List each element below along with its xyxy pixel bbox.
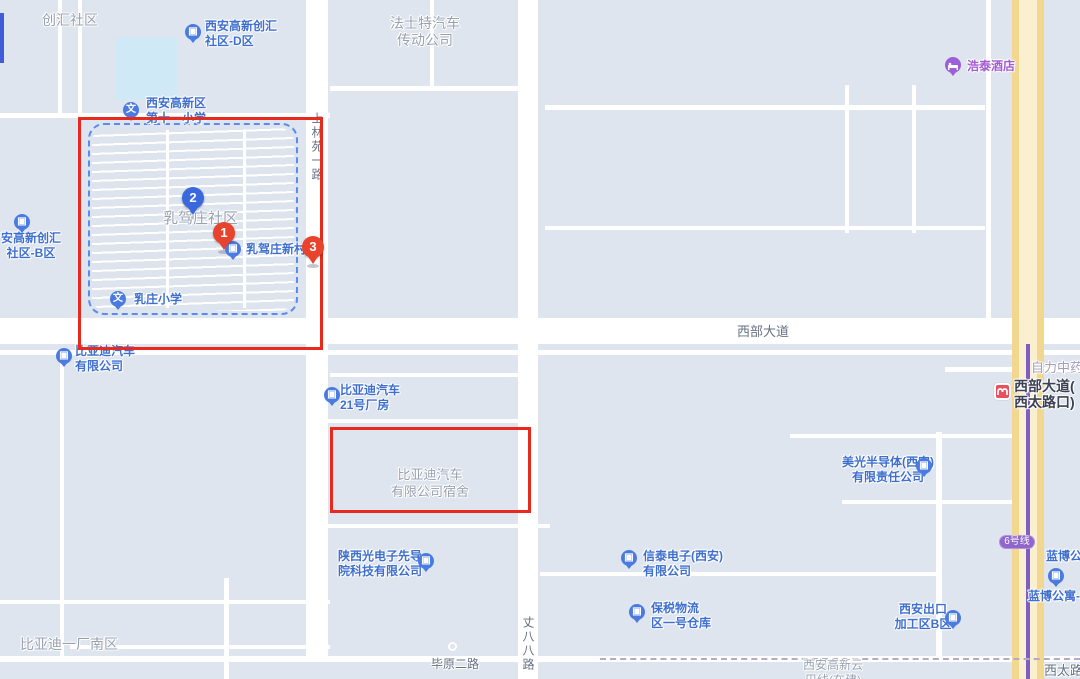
road-segment [790, 434, 1012, 438]
poi-label-lanbo-b[interactable]: 蓝博公寓-B( [1028, 589, 1080, 604]
building-icon[interactable]: ▣ [324, 387, 340, 403]
road-label-xibu-dadao: 西部大道 [737, 324, 789, 339]
building-icon[interactable]: ▣ [418, 553, 434, 569]
map-marker-1[interactable]: 1 [213, 222, 235, 244]
building-icon[interactable]: ▣ [945, 610, 961, 626]
road-segment [330, 373, 538, 377]
poi-label-metro-station[interactable]: 西部大道(西太路口) [1014, 378, 1075, 410]
poi-label-lanbo[interactable]: 蓝博公寓 [1046, 549, 1080, 564]
building-icon[interactable]: ▣ [1048, 568, 1064, 584]
road-segment [540, 572, 940, 576]
building-icon[interactable]: ▣ [185, 24, 201, 40]
hotel-bed-icon[interactable] [945, 57, 961, 73]
poi-label-byd-21-plant[interactable]: 比亚迪汽车21号厂房 [340, 383, 400, 413]
annotation-rectangle-2 [330, 427, 531, 513]
road-segment [545, 226, 985, 230]
building-icon[interactable]: ▣ [621, 550, 637, 566]
road-segment [842, 500, 1012, 504]
building-icon[interactable]: ▣ [916, 458, 932, 474]
building-icon[interactable]: ▣ [14, 214, 30, 230]
poi-label-export-zone-b[interactable]: 西安出口加工区B区 [894, 602, 952, 632]
poi-label-shaanxi-photonics[interactable]: 陕西光电子先导院科技有限公司 [338, 549, 422, 579]
highlighted-road-segment [0, 13, 4, 63]
area-label-fast-auto: 法士特汽车传动公司 [375, 15, 475, 49]
road-segment [545, 105, 985, 110]
poi-label-haotai-hotel[interactable]: 浩泰酒店 [967, 59, 1015, 74]
area-label-byd-plant1-south: 比亚迪一厂南区 [20, 636, 118, 653]
metro-line-6-badge[interactable]: 6号线 [999, 535, 1035, 549]
road-segment [60, 362, 64, 656]
metro-station-icon[interactable] [994, 383, 1011, 400]
area-label-zili-zhongyao: 自力中药 [1031, 360, 1080, 375]
building-icon[interactable]: ▣ [56, 348, 72, 364]
school-icon[interactable]: 文 [123, 102, 139, 118]
road-segment [224, 578, 229, 679]
road-segment [325, 419, 538, 423]
annotation-rectangle-1 [78, 117, 323, 350]
road-segment [330, 86, 520, 91]
building-icon[interactable]: ▣ [629, 604, 645, 620]
road-label-xitai: 西太路 [1044, 663, 1080, 678]
road-segment [320, 524, 550, 528]
area-label-yunba-line: 西安高新云巴线(在建) [788, 658, 878, 679]
poi-label-bonded-logistics[interactable]: 保税物流区一号仓库 [651, 601, 711, 631]
poi-label-chuanghui-b[interactable]: 安高新创汇社区-B区 [0, 231, 66, 261]
road-segment [0, 600, 330, 604]
road-label-zhangbaba: 丈八八路 [520, 616, 535, 672]
map-marker-3[interactable]: 3 [302, 236, 324, 258]
poi-label-xintai[interactable]: 信泰电子(西安)有限公司 [643, 549, 723, 579]
road-segment [518, 0, 538, 679]
poi-label-chuanghui-d[interactable]: 西安高新创汇社区-D区 [205, 19, 277, 49]
road-label-biyuan: 毕原二路 [431, 657, 479, 672]
road-segment [986, 0, 991, 320]
roundabout-dot [448, 642, 457, 651]
school-ground-area [115, 37, 177, 100]
map-marker-2[interactable]: 2 [182, 187, 204, 209]
area-label-chuanghui: 创汇社区 [42, 12, 98, 29]
road-segment [0, 350, 1080, 355]
map-canvas[interactable]: 创汇社区 法士特汽车传动公司 乳驾庄社区 比亚迪汽车有限公司宿舍 比亚迪一厂南区… [0, 0, 1080, 679]
